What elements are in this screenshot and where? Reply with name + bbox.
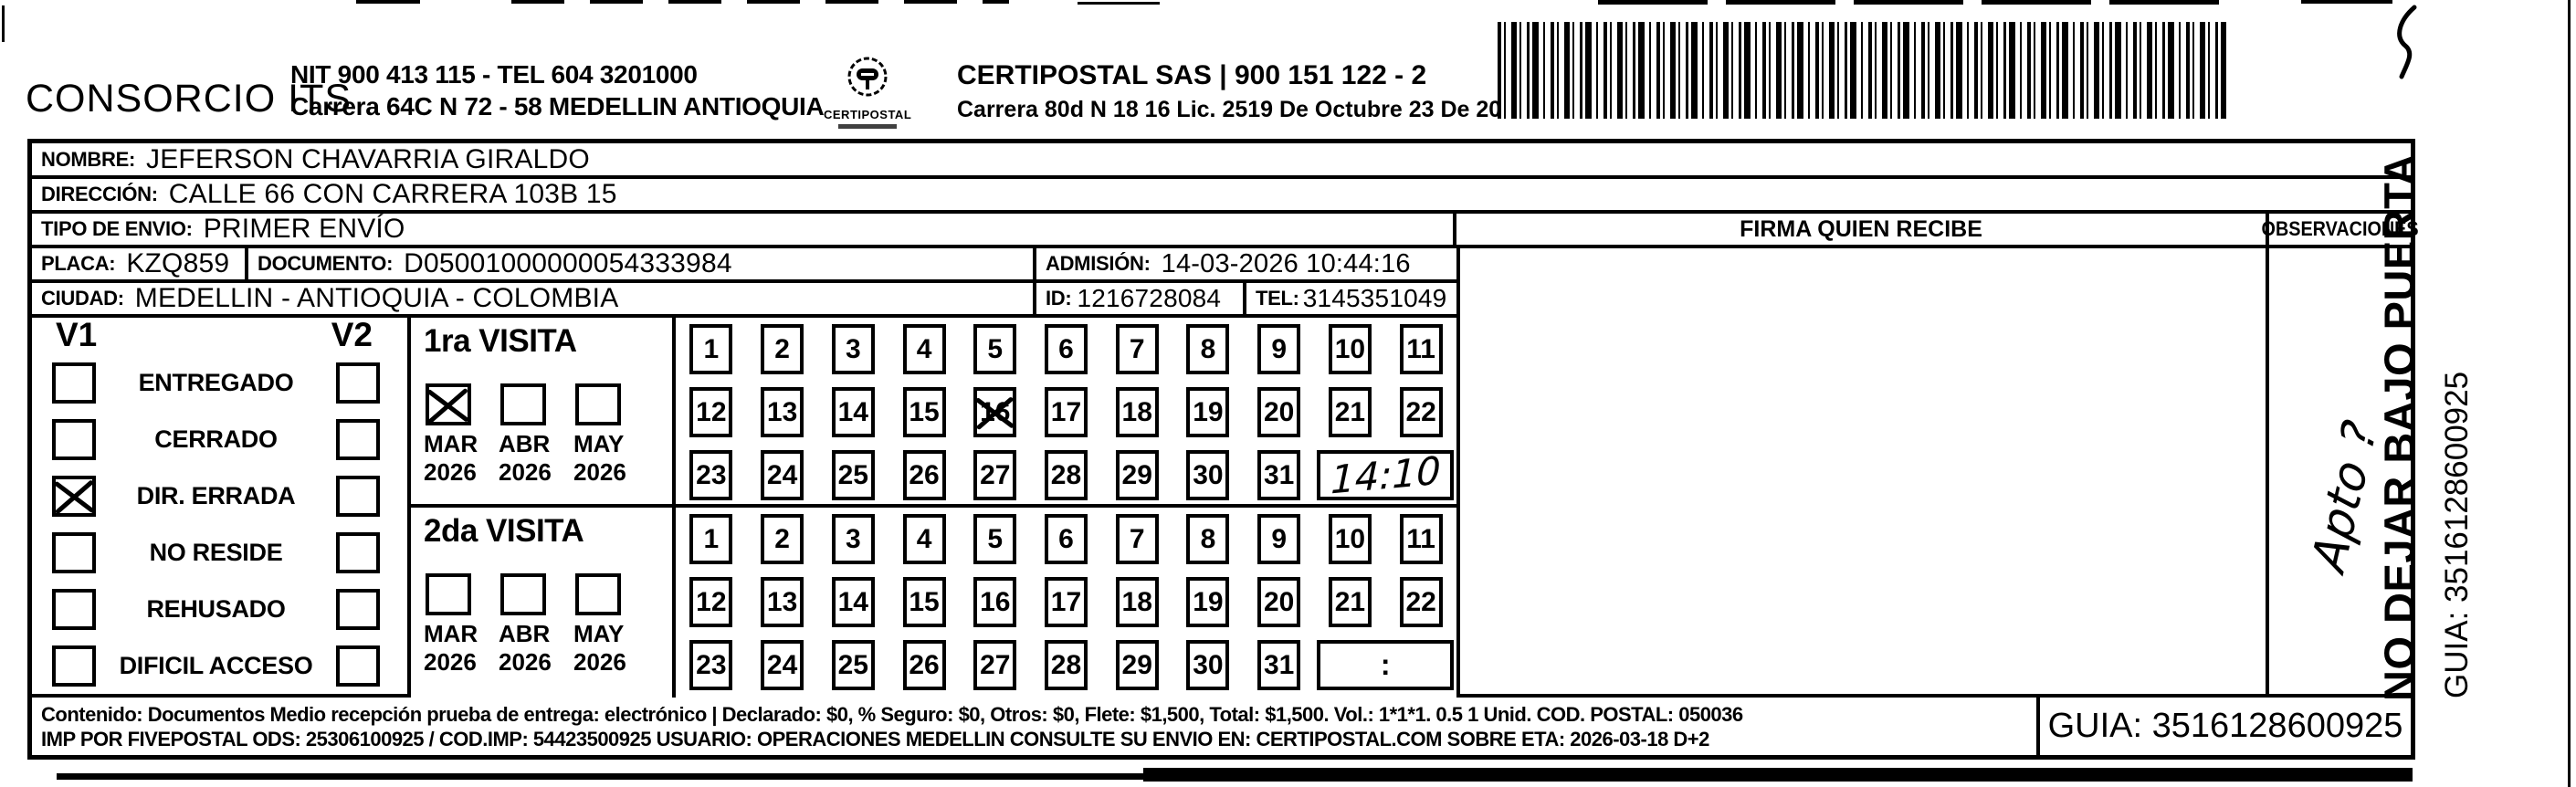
status-label: CERRADO — [96, 425, 336, 454]
v2-checkbox — [336, 476, 380, 517]
v1-checkbox — [52, 589, 96, 630]
page-edge-line — [2568, 0, 2571, 787]
scan-mark — [2301, 0, 2392, 4]
day-cell: 17 — [1045, 577, 1088, 627]
month-year: 2026 — [424, 458, 473, 487]
month-label: MAY — [573, 620, 623, 648]
time-colon: : — [1381, 648, 1391, 682]
second-visit-months: MAR2026ABR2026MAY2026 — [424, 573, 672, 677]
form-table: NOMBRE: JEFERSON CHAVARRIA GIRALDO DIREC… — [27, 139, 2415, 760]
company-info: NIT 900 413 115 - TEL 604 3201000 Carrer… — [290, 58, 824, 122]
status-row: REHUSADO — [32, 581, 407, 637]
day-cell: 12 — [689, 387, 732, 437]
day-cell: 4 — [903, 514, 946, 564]
day-cell: 4 — [903, 324, 946, 374]
day-cell: 5 — [973, 324, 1016, 374]
day-number: 25 — [838, 460, 868, 491]
month-year: 2026 — [424, 648, 473, 677]
day-number: 20 — [1264, 397, 1294, 428]
day-cell: 1 — [689, 324, 732, 374]
month-checkbox — [426, 573, 471, 615]
field-direccion: DIRECCIÓN: CALLE 66 CON CARRERA 103B 15 — [32, 179, 2411, 214]
field-tipo-envio: TIPO DE ENVIO: PRIMER ENVÍO — [32, 214, 1456, 248]
time-box: : — [1317, 640, 1454, 690]
v1-checkbox — [52, 645, 96, 687]
day-cell: 21 — [1329, 577, 1372, 627]
day-cell: 3 — [832, 324, 875, 374]
day-number: 9 — [1271, 524, 1287, 555]
day-number: 2 — [774, 524, 790, 555]
scan-bottom-bar — [57, 773, 1143, 780]
month-group: MAY2026 — [573, 383, 623, 487]
day-cell: 15 — [903, 387, 946, 437]
admision-value: 14-03-2026 10:44:16 — [1162, 249, 1411, 279]
guia-number-box: GUIA: 3516128600925 — [2036, 698, 2411, 755]
day-number: 18 — [1122, 587, 1152, 618]
logo-caption: CERTIPOSTAL — [824, 108, 911, 121]
day-number: 4 — [917, 334, 932, 365]
scan-mark — [1078, 2, 1160, 5]
ciudad-label: CIUDAD: — [41, 287, 124, 310]
day-number: 15 — [909, 397, 939, 428]
day-cell: 9 — [1257, 514, 1300, 564]
footer-fine-print: Contenido: Documentos Medio recepción pr… — [32, 698, 2036, 755]
day-cell: 10 — [1329, 514, 1372, 564]
day-number: 6 — [1058, 334, 1074, 365]
day-cell: 10 — [1329, 324, 1372, 374]
documento-value: D05001000000054333984 — [404, 248, 732, 279]
status-section: V1 V2 ENTREGADOCERRADODIR. ERRADANO RESI… — [32, 318, 411, 698]
field-tel: TEL: 3145351049 — [1246, 283, 1456, 318]
status-label: REHUSADO — [96, 595, 336, 624]
day-cell: 15 — [903, 577, 946, 627]
day-number: 23 — [696, 460, 726, 491]
second-visit-section: 2da VISITA MAR2026ABR2026MAY2026 1234567… — [411, 508, 1456, 698]
day-number: 11 — [1406, 524, 1435, 555]
delivery-guide-form: CONSORCIO ITS NIT 900 413 115 - TEL 604 … — [0, 0, 2576, 787]
status-label: DIR. ERRADA — [96, 482, 336, 510]
pen-squiggle — [2381, 4, 2436, 80]
day-cell: 20 — [1257, 387, 1300, 437]
day-cell: 25 — [832, 640, 875, 690]
admision-label: ADMISIÓN: — [1046, 252, 1151, 276]
day-cell: 20 — [1257, 577, 1300, 627]
status-label: DIFICIL ACCESO — [96, 652, 336, 680]
day-cell: 16 — [973, 577, 1016, 627]
day-cell: 6 — [1045, 514, 1088, 564]
day-number: 27 — [980, 460, 1010, 491]
day-cell: 19 — [1186, 387, 1229, 437]
day-cell: 5 — [973, 514, 1016, 564]
certipostal-license-line: Carrera 80d N 18 16 Lic. 2519 De Octubre… — [957, 97, 1527, 123]
month-year: 2026 — [573, 458, 623, 487]
day-number: 14 — [838, 587, 868, 618]
day-cell: 31 — [1257, 450, 1300, 500]
day-number: 16 — [980, 587, 1010, 618]
first-visit-title: 1ra VISITA — [424, 323, 672, 360]
day-number: 26 — [909, 460, 939, 491]
ciudad-value: MEDELLIN - ANTIOQUIA - COLOMBIA — [135, 283, 619, 314]
month-group: MAY2026 — [573, 573, 623, 677]
day-number: 29 — [1122, 460, 1152, 491]
side-warning-text: NO DEJAR BAJO PUERTA — [2376, 154, 2424, 701]
day-cell: 27 — [973, 450, 1016, 500]
day-number: 30 — [1193, 650, 1223, 681]
certipostal-logo: CERTIPOSTAL — [824, 55, 911, 129]
day-number: 11 — [1406, 334, 1435, 365]
day-cell: 11 — [1400, 514, 1443, 564]
v2-checkbox — [336, 589, 380, 630]
placa-value: KZQ859 — [126, 248, 229, 279]
month-group: ABR2026 — [499, 383, 548, 487]
time-box: 14:10 — [1317, 450, 1454, 500]
day-cell: 14 — [832, 577, 875, 627]
month-year: 2026 — [499, 458, 548, 487]
v2-checkbox — [336, 645, 380, 687]
day-cell: 13 — [761, 387, 804, 437]
day-cell: 7 — [1116, 324, 1159, 374]
v1-checkbox — [52, 476, 96, 517]
day-number: 26 — [909, 650, 939, 681]
day-cell: 29 — [1116, 450, 1159, 500]
footer-line1: Contenido: Documentos Medio recepción pr… — [41, 702, 2027, 727]
field-placa: PLACA: KZQ859 — [32, 248, 248, 283]
day-cell: 7 — [1116, 514, 1159, 564]
documento-label: DOCUMENTO: — [258, 252, 393, 276]
month-group: ABR2026 — [499, 573, 548, 677]
day-cell: 19 — [1186, 577, 1229, 627]
day-number: 3 — [846, 334, 861, 365]
day-cell: 22 — [1400, 387, 1443, 437]
day-cell: 31 — [1257, 640, 1300, 690]
day-cell: 21 — [1329, 387, 1372, 437]
day-number: 19 — [1193, 397, 1223, 428]
tel-label: TEL: — [1256, 287, 1299, 310]
day-number: 18 — [1122, 397, 1152, 428]
day-number: 7 — [1130, 334, 1145, 365]
day-number: 28 — [1051, 650, 1081, 681]
day-number: 16 — [980, 397, 1010, 428]
day-number: 5 — [987, 524, 1003, 555]
day-number: 28 — [1051, 460, 1081, 491]
day-number: 10 — [1335, 334, 1365, 365]
month-label: MAY — [573, 430, 623, 458]
day-cell: 23 — [689, 450, 732, 500]
day-number: 22 — [1405, 397, 1435, 428]
day-number: 21 — [1335, 587, 1365, 618]
scan-bottom-bar — [1143, 768, 2413, 782]
day-cell: 24 — [761, 450, 804, 500]
month-checkbox — [426, 383, 471, 425]
field-documento: DOCUMENTO: D05001000000054333984 — [248, 248, 1036, 283]
day-number: 4 — [917, 524, 932, 555]
day-cell: 17 — [1045, 387, 1088, 437]
v2-column-label: V2 — [331, 318, 373, 352]
field-ciudad: CIUDAD: MEDELLIN - ANTIOQUIA - COLOMBIA — [32, 283, 1036, 318]
day-number: 17 — [1051, 587, 1081, 618]
day-cell: 25 — [832, 450, 875, 500]
day-number: 29 — [1122, 650, 1152, 681]
certipostal-stamp-icon — [844, 55, 891, 102]
day-number: 8 — [1201, 334, 1216, 365]
scan-mark — [356, 0, 420, 4]
tel-value: 3145351049 — [1303, 284, 1447, 313]
barcode — [1498, 22, 2226, 119]
day-number: 17 — [1051, 397, 1081, 428]
direccion-value: CALLE 66 CON CARRERA 103B 15 — [169, 179, 617, 210]
status-row: DIFICIL ACCESO — [32, 637, 407, 694]
day-cell: 9 — [1257, 324, 1300, 374]
day-number: 12 — [696, 397, 726, 428]
second-visit-day-grid: 1234567891011121314151617181920212223242… — [676, 508, 1456, 698]
day-cell: 13 — [761, 577, 804, 627]
day-cell: 11 — [1400, 324, 1443, 374]
status-header: V1 V2 — [32, 318, 407, 354]
day-number: 1 — [704, 524, 720, 555]
logo-tagline-bar — [838, 124, 897, 129]
month-label: MAR — [424, 430, 473, 458]
day-number: 13 — [767, 587, 797, 618]
day-cell: 26 — [903, 640, 946, 690]
day-number: 24 — [767, 650, 797, 681]
day-cell: 12 — [689, 577, 732, 627]
day-cell: 28 — [1045, 640, 1088, 690]
first-visit-months: MAR2026ABR2026MAY2026 — [424, 383, 672, 487]
day-number: 19 — [1193, 587, 1223, 618]
placa-label: PLACA: — [41, 252, 115, 276]
side-guia-number: GUIA: 3516128600925 — [2440, 372, 2475, 698]
day-number: 30 — [1193, 460, 1223, 491]
v2-checkbox — [336, 419, 380, 460]
day-cell: 1 — [689, 514, 732, 564]
month-checkbox — [575, 383, 621, 425]
day-cell: 30 — [1186, 640, 1229, 690]
day-number: 22 — [1405, 587, 1435, 618]
v1-checkbox — [52, 419, 96, 460]
day-number: 15 — [909, 587, 939, 618]
month-label: ABR — [499, 620, 548, 648]
day-cell: 2 — [761, 324, 804, 374]
day-cell: 23 — [689, 640, 732, 690]
day-number: 27 — [980, 650, 1010, 681]
first-visit-day-grid: 1234567891011121314151617181920212223242… — [676, 318, 1456, 504]
day-cell: 29 — [1116, 640, 1159, 690]
id-label: ID: — [1046, 287, 1071, 310]
v2-checkbox — [336, 362, 380, 404]
day-number: 25 — [838, 650, 868, 681]
status-row: NO RESIDE — [32, 524, 407, 581]
nombre-label: NOMBRE: — [41, 148, 135, 172]
day-cell: 26 — [903, 450, 946, 500]
certipostal-company-line: CERTIPOSTAL SAS | 900 151 122 - 2 — [957, 60, 1426, 91]
day-cell: 8 — [1186, 324, 1229, 374]
month-year: 2026 — [573, 648, 623, 677]
month-checkbox — [500, 383, 546, 425]
status-row: CERRADO — [32, 411, 407, 467]
day-cell: 22 — [1400, 577, 1443, 627]
day-number: 3 — [846, 524, 861, 555]
second-visit-title: 2da VISITA — [424, 513, 672, 550]
status-label: NO RESIDE — [96, 539, 336, 567]
footer-line2: IMP POR FIVEPOSTAL ODS: 25306100925 / CO… — [41, 727, 2027, 751]
v2-checkbox — [336, 532, 380, 573]
status-label: ENTREGADO — [96, 369, 336, 397]
company-address-line: Carrera 64C N 72 - 58 MEDELLIN ANTIOQUIA — [290, 90, 824, 122]
day-number: 23 — [696, 650, 726, 681]
day-cell: 28 — [1045, 450, 1088, 500]
month-checkbox — [575, 573, 621, 615]
id-value: 1216728084 — [1077, 284, 1221, 313]
day-number: 8 — [1201, 524, 1216, 555]
day-number: 12 — [696, 587, 726, 618]
scan-mark — [511, 0, 1009, 4]
status-row: ENTREGADO — [32, 354, 407, 411]
field-nombre: NOMBRE: JEFERSON CHAVARRIA GIRALDO — [32, 143, 2411, 179]
month-label: ABR — [499, 430, 548, 458]
day-number: 5 — [987, 334, 1003, 365]
day-number: 6 — [1058, 524, 1074, 555]
v1-column-label: V1 — [56, 318, 97, 352]
day-number: 7 — [1130, 524, 1145, 555]
day-cell: 18 — [1116, 387, 1159, 437]
month-group: MAR2026 — [424, 383, 473, 487]
day-cell: 2 — [761, 514, 804, 564]
firma-signature-area — [1456, 248, 2269, 698]
first-visit-month-panel: 1ra VISITA MAR2026ABR2026MAY2026 — [411, 318, 676, 504]
day-number: 20 — [1264, 587, 1294, 618]
day-number: 31 — [1264, 460, 1294, 491]
field-id: ID: 1216728084 — [1036, 283, 1246, 318]
field-admision: ADMISIÓN: 14-03-2026 10:44:16 — [1036, 248, 1456, 283]
day-cell: 8 — [1186, 514, 1229, 564]
direccion-label: DIRECCIÓN: — [41, 183, 158, 206]
month-checkbox — [500, 573, 546, 615]
month-label: MAR — [424, 620, 473, 648]
nombre-value: JEFERSON CHAVARRIA GIRALDO — [146, 144, 590, 175]
month-year: 2026 — [499, 648, 548, 677]
day-number: 21 — [1335, 397, 1365, 428]
scan-mark — [2, 5, 5, 42]
firma-column-header: FIRMA QUIEN RECIBE — [1456, 214, 2269, 248]
day-cell: 6 — [1045, 324, 1088, 374]
company-nit-line: NIT 900 413 115 - TEL 604 3201000 — [290, 58, 824, 90]
day-number: 24 — [767, 460, 797, 491]
v1-checkbox — [52, 362, 96, 404]
month-group: MAR2026 — [424, 573, 473, 677]
day-cell: 3 — [832, 514, 875, 564]
day-cell: 18 — [1116, 577, 1159, 627]
tipo-envio-label: TIPO DE ENVIO: — [41, 217, 193, 241]
day-number: 2 — [774, 334, 790, 365]
v1-checkbox — [52, 532, 96, 573]
day-number: 31 — [1264, 650, 1294, 681]
day-number: 1 — [704, 334, 720, 365]
day-number: 13 — [767, 397, 797, 428]
day-cell: 16 — [973, 387, 1016, 437]
day-number: 10 — [1335, 524, 1365, 555]
tipo-envio-value: PRIMER ENVÍO — [204, 214, 405, 245]
scan-mark — [1598, 0, 2228, 5]
day-cell: 24 — [761, 640, 804, 690]
day-cell: 27 — [973, 640, 1016, 690]
first-visit-section: 1ra VISITA MAR2026ABR2026MAY2026 1234567… — [411, 318, 1456, 508]
day-cell: 14 — [832, 387, 875, 437]
day-cell: 30 — [1186, 450, 1229, 500]
second-visit-month-panel: 2da VISITA MAR2026ABR2026MAY2026 — [411, 508, 676, 698]
status-row: DIR. ERRADA — [32, 467, 407, 524]
handwritten-time: 14:10 — [1330, 448, 1441, 503]
day-number: 14 — [838, 397, 868, 428]
day-number: 9 — [1271, 334, 1287, 365]
status-rows: ENTREGADOCERRADODIR. ERRADANO RESIDEREHU… — [32, 354, 407, 694]
